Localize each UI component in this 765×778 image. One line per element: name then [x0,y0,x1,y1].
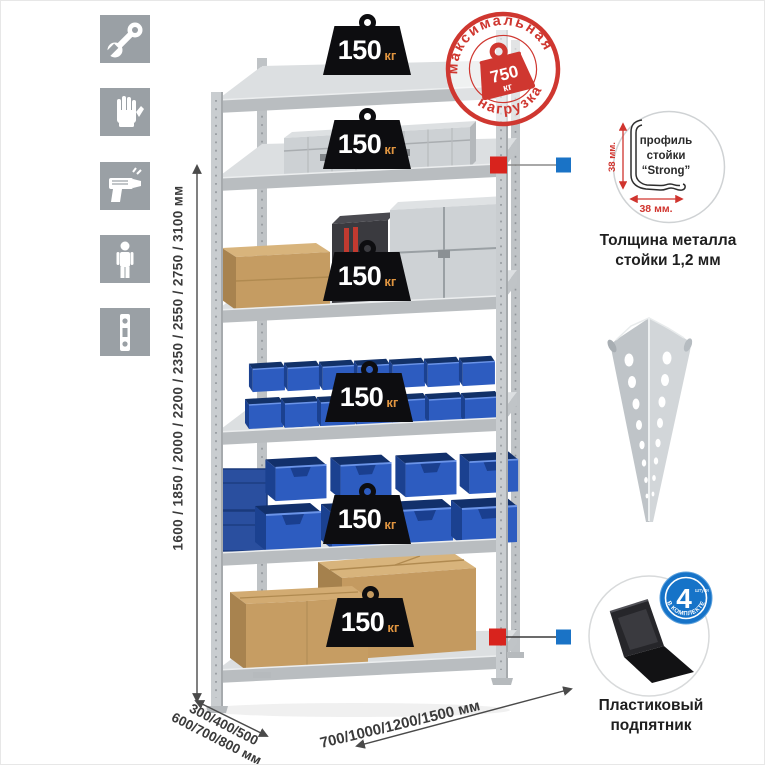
load-badge-shelf-2: 150кг [323,108,411,170]
tool-tile-drill [100,162,150,210]
svg-text:стойки: стойки [647,150,686,162]
load-badge-shelf-1: 150кг [323,14,411,76]
post-profile-detail: 38 мм. 38 мм. профиль стойки “Strong” [598,96,744,246]
svg-text:4: 4 [676,583,692,614]
svg-text:штуки: штуки [695,588,709,594]
drill-icon [100,162,150,210]
angle-post-photo [606,318,694,522]
person-icon [100,235,150,283]
tool-tile-level [100,308,150,356]
svg-text:профиль: профиль [640,135,693,147]
tool-tile-wrench [100,15,150,63]
level-icon [100,308,150,356]
load-badge-shelf-6: 150кг [326,586,414,648]
foot-caption: Пластиковый подпятник [566,696,736,736]
included-count-badge: 4 штуки в комплекте [659,571,713,625]
svg-text:“Strong”: “Strong” [642,165,691,177]
load-badge-shelf-3: 150кг [323,240,411,302]
tool-tile-gloves [100,88,150,136]
profile-labels: профиль стойки “Strong” [640,135,693,177]
height-dimension-label: 1600 / 1850 / 2000 / 2200 / 2350 / 2550 … [171,185,186,550]
load-badge-shelf-5: 150кг [323,483,411,545]
profile-dim-horizontal-label: 38 мм. [639,203,672,215]
load-badge-shelf-4: 150кг [325,361,413,423]
profile-caption: Толщина металла стойки 1,2 мм [583,231,753,271]
tool-tile-person [100,235,150,283]
product-illustration-page: { "page": {"background": "#ffffff"}, "to… [0,0,765,765]
wrench-icon [100,15,150,63]
profile-dim-vertical-label: 38 мм. [607,142,618,172]
gloves-icon [100,88,150,136]
